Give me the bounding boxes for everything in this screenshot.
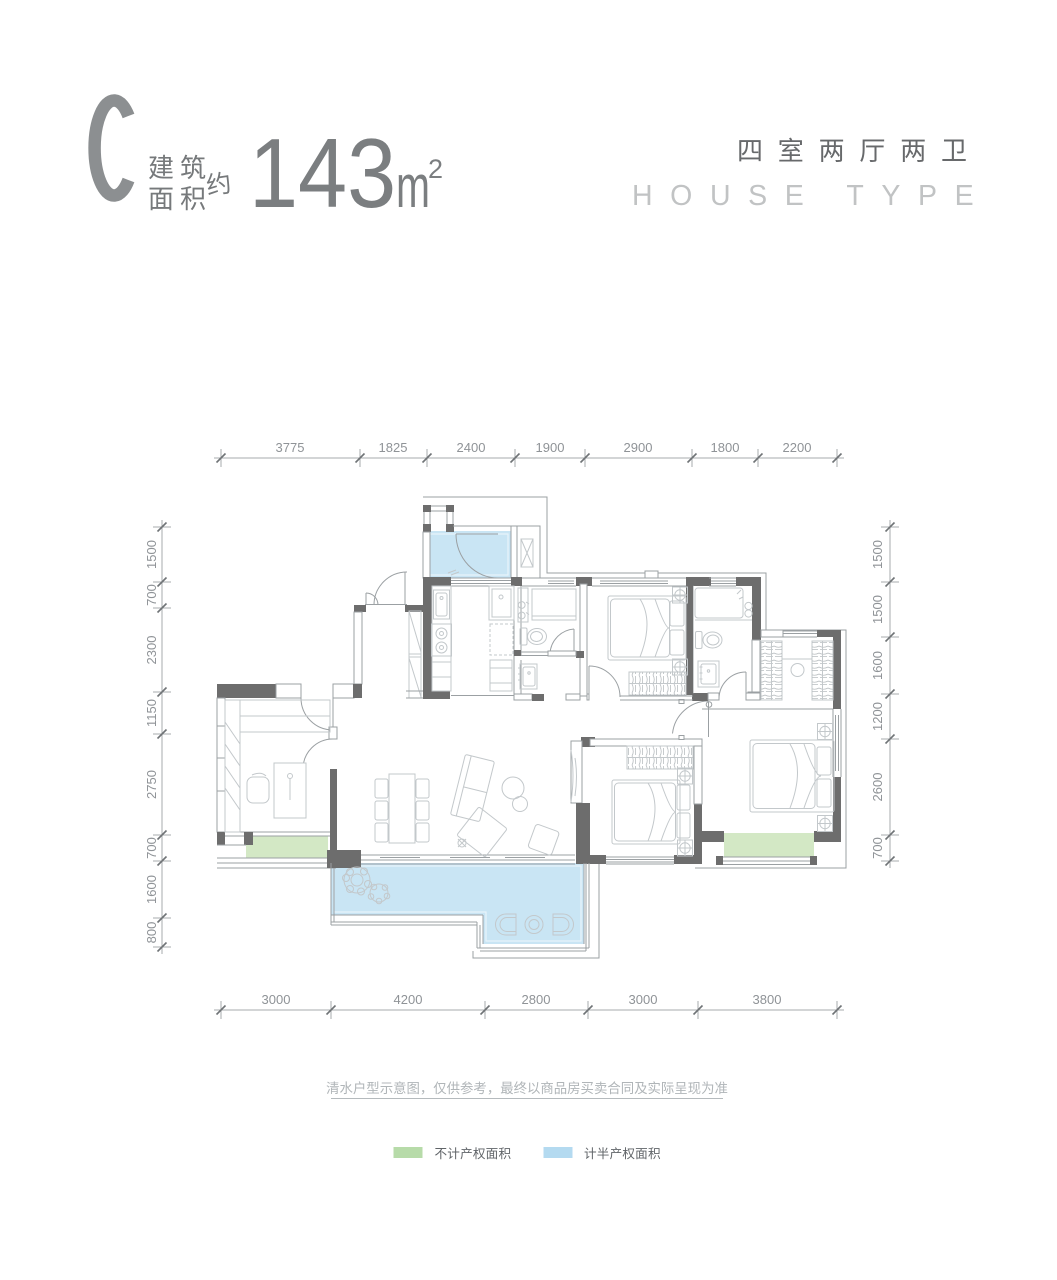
svg-text:HOUSE TYPE: HOUSE TYPE (632, 180, 991, 212)
svg-text:2900: 2900 (624, 440, 653, 455)
svg-text:3000: 3000 (262, 992, 291, 1007)
svg-text:1600: 1600 (144, 875, 159, 904)
svg-text:建筑: 建筑 (148, 153, 212, 183)
svg-text:2: 2 (428, 154, 443, 184)
svg-text:4200: 4200 (394, 992, 423, 1007)
svg-text:3775: 3775 (276, 440, 305, 455)
svg-text:2800: 2800 (522, 992, 551, 1007)
svg-text:1150: 1150 (144, 699, 159, 727)
svg-text:2200: 2200 (783, 440, 812, 455)
svg-text:面积: 面积 (148, 184, 212, 214)
svg-text:清水户型示意图，仅供参考，最终以商品房买卖合同及实际呈现为准: 清水户型示意图，仅供参考，最终以商品房买卖合同及实际呈现为准 (326, 1080, 728, 1096)
svg-text:3800: 3800 (753, 992, 782, 1007)
svg-text:2750: 2750 (144, 770, 159, 799)
svg-text:1825: 1825 (379, 440, 408, 455)
svg-text:四室两厅两卫: 四室两厅两卫 (737, 136, 982, 166)
svg-text:700: 700 (870, 837, 885, 859)
svg-text:约: 约 (205, 169, 234, 200)
svg-text:不计产权面积: 不计产权面积 (435, 1146, 512, 1161)
svg-text:计半产权面积: 计半产权面积 (584, 1146, 661, 1161)
svg-text:3000: 3000 (629, 992, 658, 1007)
svg-text:1800: 1800 (711, 440, 740, 455)
svg-text:2600: 2600 (870, 773, 885, 802)
svg-text:1500: 1500 (870, 595, 885, 624)
svg-text:1500: 1500 (144, 540, 159, 569)
svg-text:1500: 1500 (870, 540, 885, 569)
svg-text:143: 143 (249, 119, 396, 228)
svg-text:800: 800 (144, 922, 159, 944)
svg-text:700: 700 (144, 837, 159, 859)
svg-text:2400: 2400 (457, 440, 486, 455)
svg-text:2300: 2300 (144, 636, 159, 665)
svg-text:1600: 1600 (870, 651, 885, 680)
svg-text:m: m (396, 153, 430, 220)
svg-text:1900: 1900 (536, 440, 565, 455)
svg-text:700: 700 (144, 584, 159, 606)
svg-text:1200: 1200 (870, 702, 885, 731)
